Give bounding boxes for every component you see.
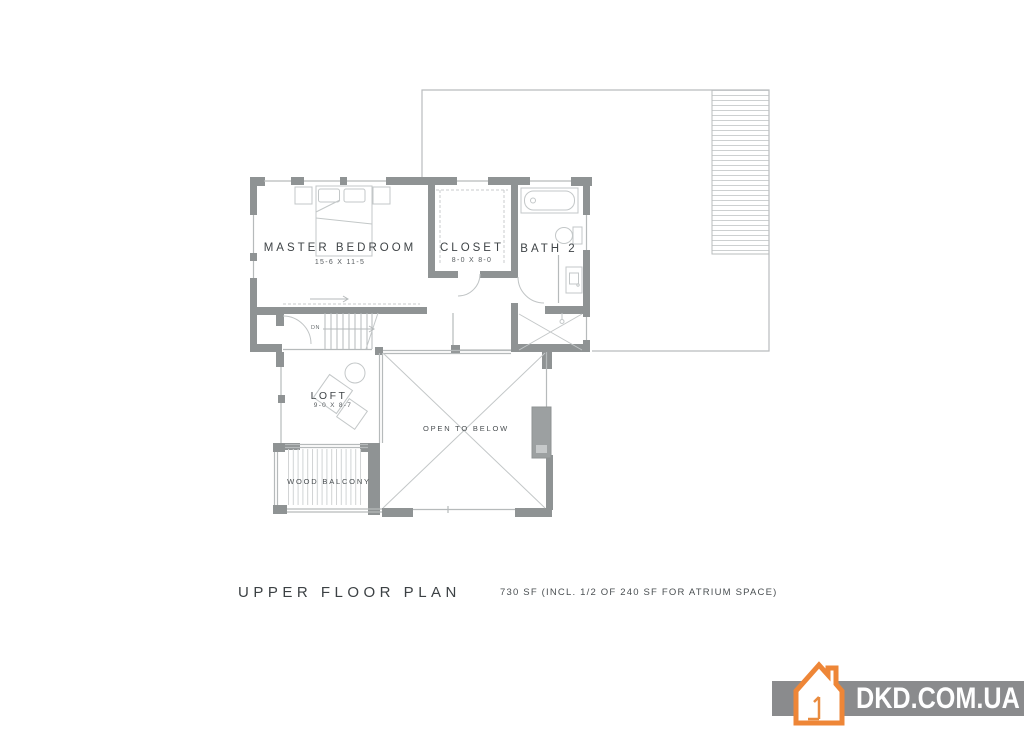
loft-dimensions: 9-0 X 8-7: [314, 402, 352, 409]
bathtub: [521, 188, 578, 213]
roof-outline: [422, 90, 769, 351]
closet-label: CLOSET: [440, 242, 504, 254]
master-bedroom-dimensions: 15-6 X 11-5: [315, 259, 365, 266]
floor-plan-drawing: [0, 0, 1024, 749]
plan-title: UPPER FLOOR PLAN: [238, 584, 461, 601]
stair-dn-label: DN: [311, 325, 320, 331]
master-bedroom-label: MASTER BEDROOM: [264, 242, 417, 254]
bath2-label: BATH 2: [520, 243, 577, 255]
loft-label: LOFT: [311, 390, 348, 402]
open-to-below-label: OPEN TO BELOW: [423, 424, 509, 433]
closet-dimensions: 8-0 X 8-0: [452, 257, 493, 264]
plan-area-note: 730 SF (INCL. 1/2 OF 240 SF FOR ATRIUM S…: [500, 587, 777, 598]
house-logo-icon: [788, 659, 850, 729]
vanity: [566, 267, 582, 293]
fireplace: [532, 407, 551, 458]
toilet: [556, 227, 583, 244]
watermark-text: DKD.COM.UA: [856, 681, 1020, 716]
floor-plan-page: MASTER BEDROOM 15-6 X 11-5 CLOSET 8-0 X …: [0, 0, 1024, 749]
nightstand-right: [373, 187, 390, 204]
wood-balcony-label: WOOD BALCONY: [287, 477, 371, 486]
nightstand-left: [295, 187, 312, 204]
roof-hatch: [712, 90, 769, 254]
